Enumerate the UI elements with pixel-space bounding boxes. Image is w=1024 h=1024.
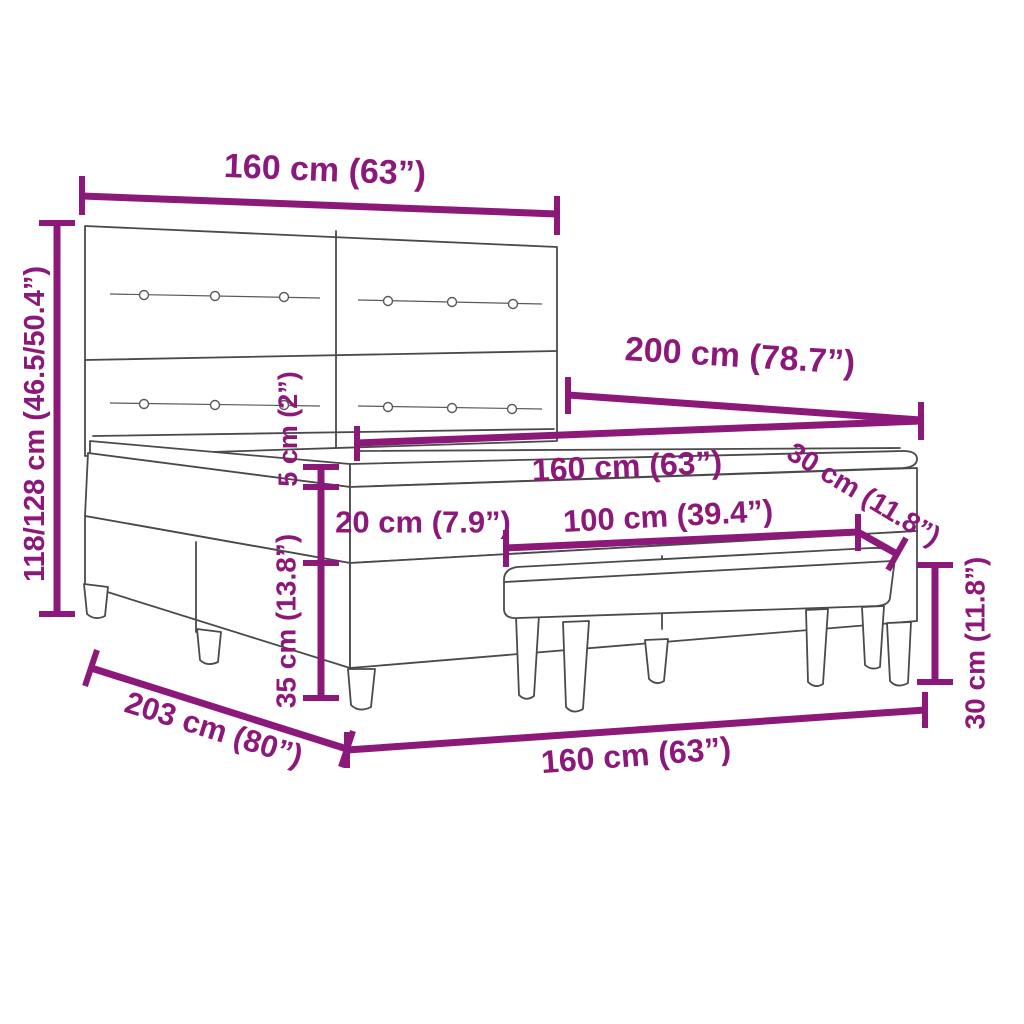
dim-frame-floor-length: 203 cm (80”) (85, 650, 353, 773)
bed-leg (197, 629, 221, 664)
tuft-button (384, 297, 393, 306)
dim-mattress-thickness-label: 20 cm (7.9”) (335, 505, 511, 540)
dim-headboard-width: 160 cm (63”) (82, 147, 557, 235)
headboard (85, 226, 557, 456)
dim-total-height-label: 118/128 cm (46.5/50.4”) (19, 266, 51, 582)
tuft-button (448, 404, 457, 413)
bed-leg (84, 584, 108, 618)
tuft-button (140, 291, 149, 300)
dim-headboard-width-label: 160 cm (63”) (223, 147, 427, 193)
tuft-button (211, 292, 220, 301)
bed-leg (887, 622, 911, 686)
tuft-button (140, 400, 149, 409)
headboard-outline (85, 226, 557, 456)
bench-leg (806, 609, 828, 686)
dim-base-height-label: 35 cm (13.8”) (271, 534, 302, 708)
tuft-button (509, 300, 518, 309)
bed-leg (348, 669, 375, 710)
bench-leg (516, 615, 539, 699)
dim-total-height: 118/128 cm (46.5/50.4”) (19, 223, 75, 614)
tuft-button (508, 405, 517, 414)
diagram-canvas: 160 cm (63”) 118/128 cm (46.5/50.4”) 200… (0, 0, 1024, 1024)
dim-bed-length-label: 200 cm (78.7”) (624, 330, 856, 382)
bench-leg (563, 621, 589, 712)
dim-bench-height-label: 30 cm (11.8”) (960, 557, 991, 730)
dim-bench-height: 30 cm (11.8”) (917, 557, 991, 730)
bench-leg (862, 606, 884, 669)
bench-leg (645, 639, 668, 683)
tuft-button (211, 401, 220, 410)
tuft-button (280, 293, 289, 302)
dim-bed-floor-width: 160 cm (63”) (347, 692, 925, 780)
tuft-button (384, 403, 393, 412)
tuft-button (448, 298, 457, 307)
bed-dimension-diagram: 160 cm (63”) 118/128 cm (46.5/50.4”) 200… (0, 0, 1024, 1024)
dim-topper-thickness-label: 5 cm (2”) (273, 371, 303, 487)
